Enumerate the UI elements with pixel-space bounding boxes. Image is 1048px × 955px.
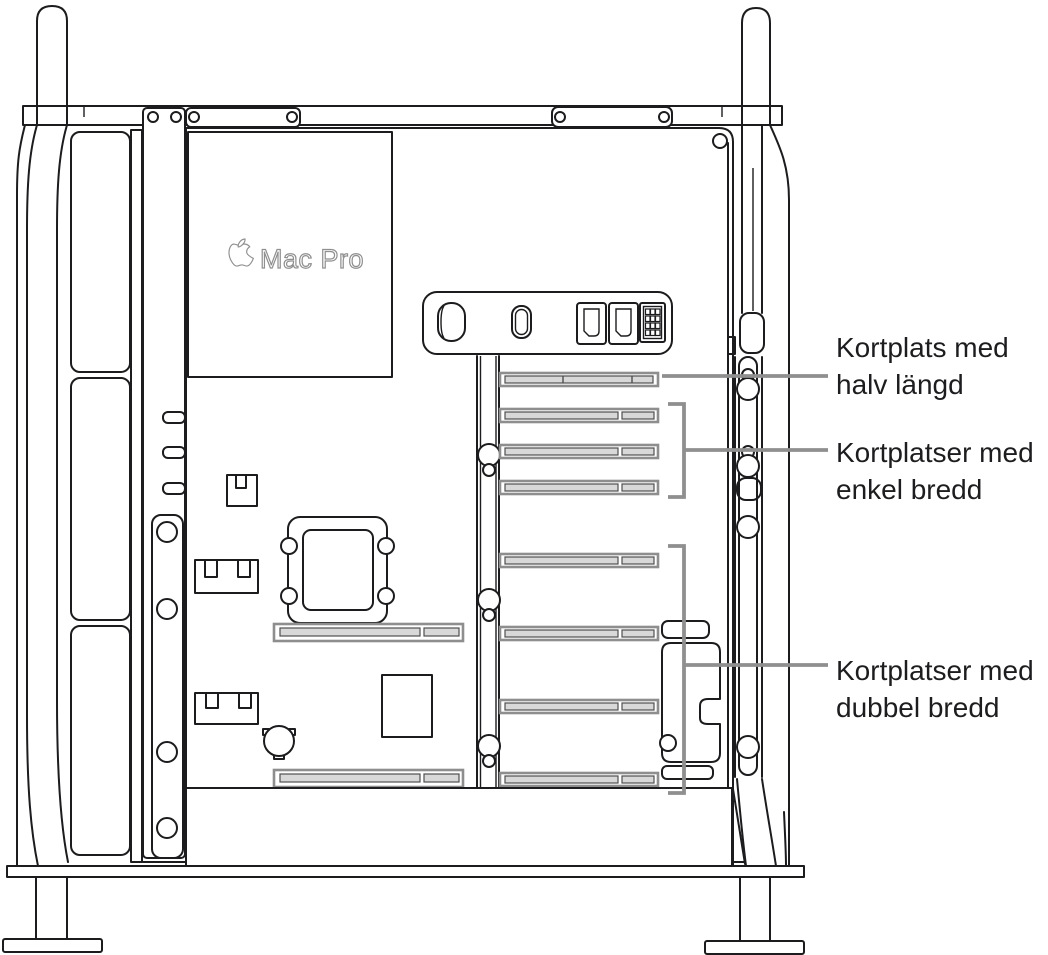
- front-rail-narrow: [131, 130, 142, 862]
- ram-slot: [274, 624, 463, 641]
- label-single-wide-line1: Kortplatser med: [836, 437, 1034, 468]
- pcie-slot-single-wide-1: [500, 409, 658, 422]
- pcie-slot-double-wide-1: [500, 554, 658, 567]
- mac-pro-side-view-diagram: Mac Pro: [0, 0, 1048, 955]
- label-single-wide-line2: enkel bredd: [836, 474, 982, 505]
- cpu-bracket: [281, 517, 394, 623]
- right-support-rail: [735, 357, 762, 777]
- label-half-length-line1: Kortplats med: [836, 332, 1009, 363]
- left-frame-leg: [17, 125, 68, 866]
- ram-slot: [274, 770, 463, 787]
- drive-bay-panel: [71, 626, 130, 855]
- callout-bracket-single-wide: [668, 404, 684, 497]
- power-supply: [186, 788, 745, 866]
- callout-labels: Kortplats med halv längd Kortplatser med…: [836, 332, 1034, 723]
- pcie-slot-half-length: [500, 373, 658, 386]
- mac-pro-logo-text: Mac Pro: [260, 244, 364, 274]
- pcie-slot-single-wide-3: [500, 481, 658, 494]
- retention-latch: [660, 621, 720, 779]
- top-bracket-plate: [552, 107, 672, 127]
- board-connector: [227, 475, 257, 506]
- drive-bay-panel: [71, 132, 130, 372]
- board-screw: [713, 134, 727, 148]
- board-connector: [195, 560, 258, 593]
- label-double-wide-line1: Kortplatser med: [836, 655, 1034, 686]
- pcie-slot-double-wide-3: [500, 700, 658, 713]
- io-panel: [423, 292, 672, 354]
- logo-panel: Mac Pro: [188, 132, 392, 377]
- board-connector: [195, 693, 258, 724]
- pcie-slot-double-wide-4: [500, 773, 658, 786]
- screw-bracket-strip: [152, 515, 183, 858]
- label-double-wide-line2: dubbel bredd: [836, 692, 999, 723]
- center-support-rail: [477, 356, 500, 862]
- left-foot: [3, 877, 102, 952]
- pcie-slot-single-wide-2: [500, 445, 658, 458]
- board-chip: [382, 675, 432, 737]
- pcie-slot-double-wide-2: [500, 627, 658, 640]
- backup-battery: [263, 726, 295, 759]
- top-bracket-plate: [186, 108, 300, 127]
- drive-bay-panel: [71, 378, 130, 620]
- label-half-length-line2: halv längd: [836, 369, 964, 400]
- bottom-rail: [7, 866, 804, 877]
- right-foot: [705, 877, 804, 954]
